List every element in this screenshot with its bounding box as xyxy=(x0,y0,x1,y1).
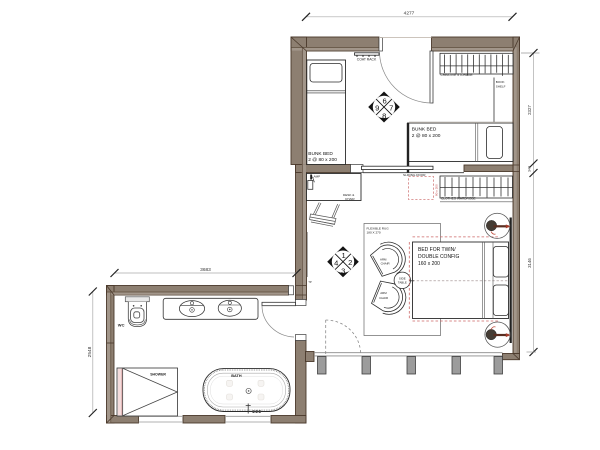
svg-text:SHELF: SHELF xyxy=(496,85,506,89)
svg-text:9: 9 xyxy=(375,104,379,113)
svg-text:SHOWER: SHOWER xyxy=(150,373,166,377)
svg-text:CLOTHES WARDROBE: CLOTHES WARDROBE xyxy=(441,196,476,200)
svg-text:6: 6 xyxy=(382,96,386,105)
svg-text:80 x 200: 80 x 200 xyxy=(435,184,439,196)
svg-text:7: 7 xyxy=(389,103,393,112)
svg-text:CHAIR: CHAIR xyxy=(381,262,390,266)
svg-text:2548: 2548 xyxy=(87,346,93,357)
svg-text:3: 3 xyxy=(341,266,345,275)
svg-text:DOUBLE CONFIG: DOUBLE CONFIG xyxy=(418,254,460,260)
svg-text:TABLE: TABLE xyxy=(398,281,407,285)
svg-text:4: 4 xyxy=(334,258,338,267)
svg-text:3146: 3146 xyxy=(527,258,532,268)
svg-text:WC: WC xyxy=(118,322,125,327)
svg-text:BUNK BED: BUNK BED xyxy=(308,151,333,157)
svg-text:3683: 3683 xyxy=(200,267,211,273)
svg-text:2 @ 80 x 200: 2 @ 80 x 200 xyxy=(308,157,337,163)
svg-text:BOOK: BOOK xyxy=(496,80,505,84)
svg-text:CREATIVE STORAGE: CREATIVE STORAGE xyxy=(441,73,473,77)
svg-text:160 x 200: 160 x 200 xyxy=(418,261,440,267)
svg-text:180 X 270: 180 X 270 xyxy=(367,231,381,235)
svg-text:340: 340 xyxy=(528,166,532,172)
svg-text:ARM: ARM xyxy=(380,291,387,295)
svg-text:8: 8 xyxy=(382,112,386,121)
svg-text:2327: 2327 xyxy=(527,105,532,115)
svg-text:BATH: BATH xyxy=(231,374,242,378)
svg-text:CHAIR: CHAIR xyxy=(345,197,355,201)
svg-text:2: 2 xyxy=(348,258,352,267)
svg-text:LAMP: LAMP xyxy=(312,175,320,179)
svg-text:4277: 4277 xyxy=(404,11,415,17)
svg-text:BED FOR TWIN/: BED FOR TWIN/ xyxy=(418,247,456,253)
svg-text:COAT RACK: COAT RACK xyxy=(357,58,377,62)
svg-text:1: 1 xyxy=(341,251,345,260)
svg-text:CHAIR: CHAIR xyxy=(379,296,388,300)
svg-text:BUNK BED: BUNK BED xyxy=(412,127,437,133)
svg-text:2 @ 80 x 200: 2 @ 80 x 200 xyxy=(412,133,441,139)
svg-text:TP: TP xyxy=(308,280,312,284)
